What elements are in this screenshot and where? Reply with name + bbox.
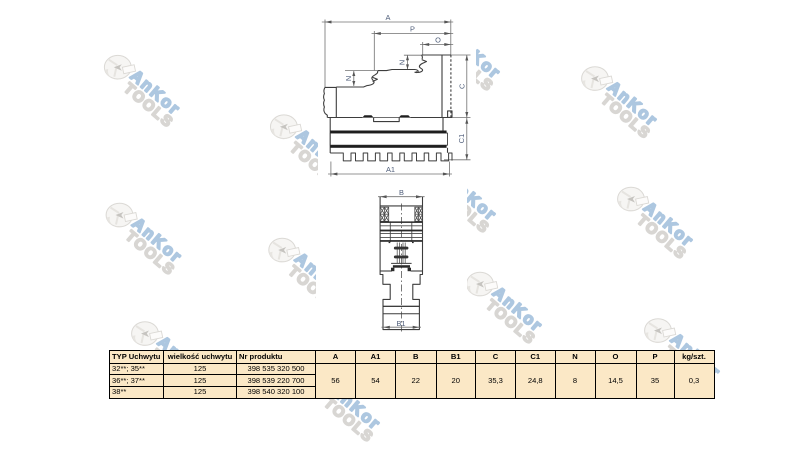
svg-text:B: B	[399, 188, 404, 197]
svg-text:B1: B1	[396, 319, 405, 328]
